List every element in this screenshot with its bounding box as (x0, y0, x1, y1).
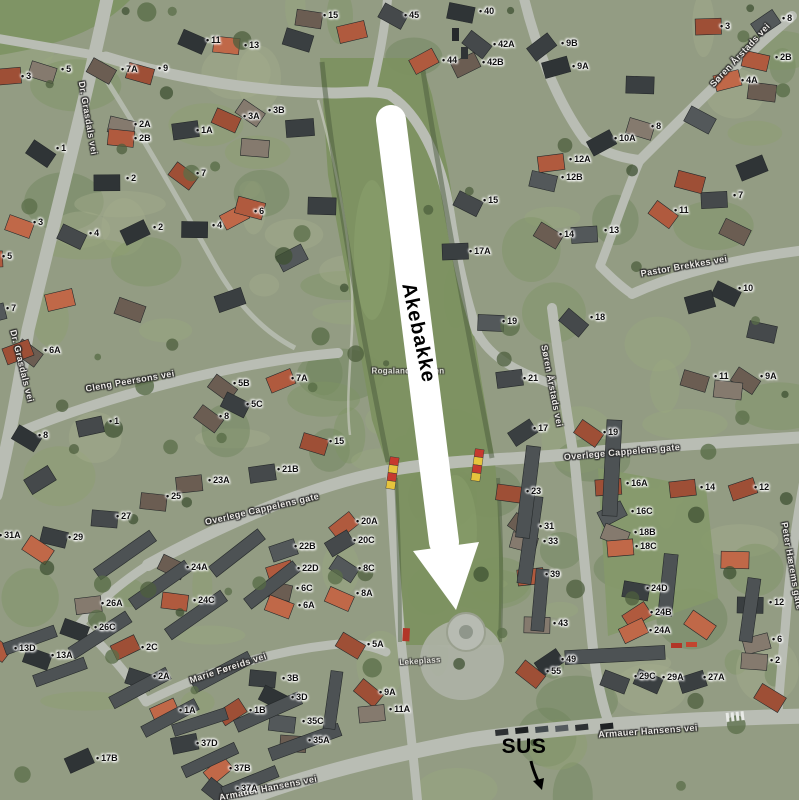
akebakke-arrow-head (413, 542, 479, 610)
route-arrow-overlay (0, 0, 799, 800)
akebakke-arrow-shaft (391, 120, 444, 542)
sus-arrow-head (533, 778, 544, 790)
aerial-map: Dr. Grasdals veiDr. Grasdals veiCleng Pe… (0, 0, 799, 800)
